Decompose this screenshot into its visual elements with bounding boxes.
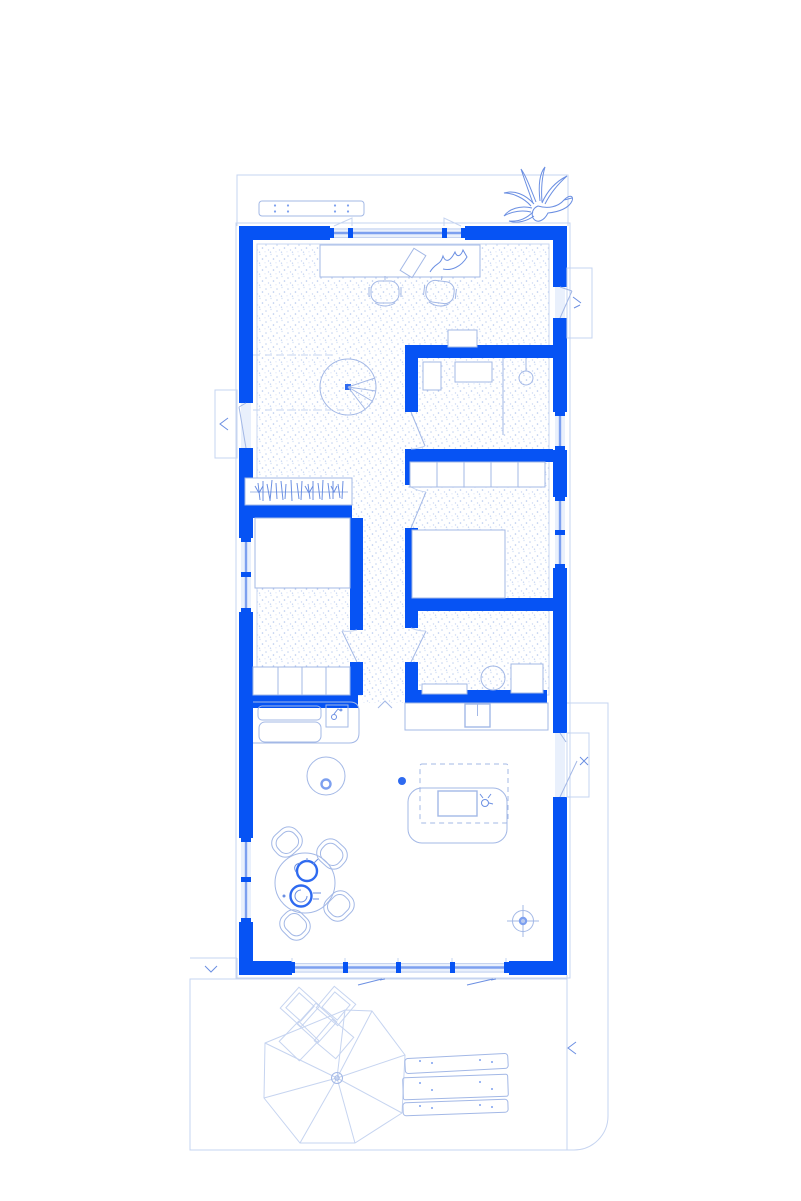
floor-plan-canvas (0, 0, 801, 1201)
open-direction-arrow (220, 418, 228, 430)
living-room (267, 757, 539, 945)
closet-row (410, 462, 545, 487)
wall-east-5 (553, 797, 567, 961)
double-bed-right (412, 530, 505, 598)
hallway-floor-strip (362, 690, 405, 703)
wall-west-1 (239, 240, 253, 403)
right-window-1 (555, 410, 565, 452)
wall-west-3 (239, 612, 253, 838)
south-sliding-glass-door (290, 958, 509, 973)
right-door-bottom (555, 733, 589, 797)
floor-plan-drawing (0, 0, 801, 1201)
wall-bedroom-left-right-b (350, 662, 363, 695)
skylight-dashed-rect (420, 764, 508, 823)
right-porch-box-top (567, 268, 592, 338)
cushion-squares-cluster (279, 986, 356, 1061)
dining-set (267, 822, 359, 944)
wall-east-2 (553, 318, 567, 412)
bench-dowel-dots (274, 204, 349, 212)
left-window-2 (241, 836, 251, 924)
sink-drainer (258, 706, 321, 720)
cup-icon (480, 794, 493, 807)
edge-arrow-left (358, 979, 385, 985)
wall-bedroom-left-top (253, 505, 352, 518)
wall-corridor-right-e (405, 662, 418, 690)
faucet-icon (332, 709, 342, 720)
wall-bathroom-top (405, 345, 553, 358)
teapot-icon (295, 858, 318, 881)
wall-south-left (239, 961, 292, 975)
wall-corridor-right-a (405, 358, 418, 412)
picnic-bench-top (405, 1053, 509, 1073)
swing-ticks (573, 297, 581, 308)
wall-corridor-right-d (405, 611, 418, 628)
left-window-1 (241, 536, 251, 614)
panel-ticks (292, 958, 506, 962)
dining-chair-ne (312, 834, 352, 873)
downspout-box (190, 958, 237, 979)
edge-arrow-right (467, 979, 496, 985)
wall-east-1 (553, 240, 567, 287)
coffee-table (438, 791, 477, 816)
wall-bedroom-right-bottom (405, 598, 553, 611)
wall-south-right (509, 961, 567, 975)
downspout-arrow (205, 966, 217, 972)
floor-drain-crosshair (507, 905, 539, 937)
low-bench (422, 684, 467, 694)
plate-icon (283, 886, 322, 907)
garden-deck (264, 986, 508, 1143)
top-window (328, 218, 467, 238)
dining-chair-nw (267, 822, 307, 861)
dining-chair-se (319, 886, 359, 926)
picnic-table (403, 1074, 509, 1100)
wall-north-right (465, 226, 567, 240)
tick-mark (568, 1042, 576, 1054)
parasol (264, 1010, 405, 1143)
ceiling-point-dot (398, 777, 406, 785)
sink-basin (259, 722, 321, 742)
wall-closet-top (405, 449, 553, 462)
wall-bedroom-left-right-a (350, 518, 363, 630)
faucet-box (326, 705, 348, 727)
tilt-opening-triangles (334, 218, 461, 226)
left-porch-box (215, 390, 237, 458)
side-table (448, 330, 477, 347)
terrace-top (237, 167, 573, 226)
right-window-2 (555, 495, 565, 570)
wall-east-3 (553, 450, 567, 497)
terrace-bench (259, 201, 364, 216)
side-table-detail (322, 780, 331, 789)
bath-counter (455, 362, 492, 382)
long-desk (320, 245, 480, 277)
wall-west-4 (239, 922, 253, 961)
wall-north-left (239, 226, 330, 240)
washing-machine (511, 664, 543, 693)
wall-east-4 (553, 568, 567, 733)
double-bed-left (255, 518, 350, 588)
picnic-table-set (403, 1053, 509, 1116)
kitchen-counter-top (405, 703, 548, 730)
swing-mark (580, 757, 588, 765)
washbasin (423, 362, 441, 390)
